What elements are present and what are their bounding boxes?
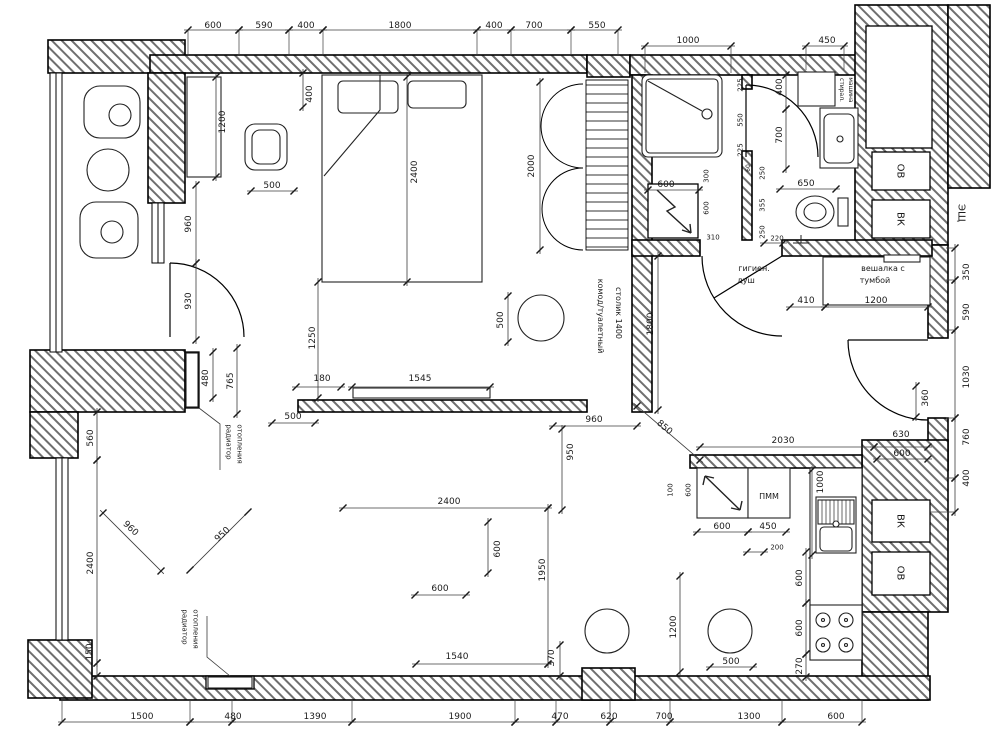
dim-label: 400 xyxy=(297,21,314,31)
dim-label: 600 xyxy=(431,584,448,594)
annotation-label: столик 1400 xyxy=(614,287,623,339)
round-table-bedroom xyxy=(518,295,564,341)
dim-label: 150 xyxy=(85,643,95,660)
wall-bath-bottom-right xyxy=(782,240,932,256)
dim-label: 950 xyxy=(566,443,576,460)
washing-machine xyxy=(798,72,835,106)
dim-label: 250 xyxy=(758,225,766,238)
wall-partition-tv xyxy=(298,400,587,412)
dim-label: 60 xyxy=(745,164,752,172)
dim-label: 1200 xyxy=(218,110,228,133)
dim-label: 1545 xyxy=(409,374,432,384)
dim-label: 590 xyxy=(255,21,272,31)
storage-niche xyxy=(866,26,932,148)
wall-bottom-step xyxy=(582,668,635,700)
dim-label: 700 xyxy=(775,126,785,143)
dim-label: 765 xyxy=(226,372,236,389)
dim-label: 500 xyxy=(496,311,506,328)
wall-bottom xyxy=(60,676,930,700)
annotation-label: тумбой xyxy=(860,276,890,285)
dim-label: 220 xyxy=(770,234,783,242)
dim-label: 500 xyxy=(284,412,301,422)
kitchen-sink xyxy=(816,497,856,553)
round-table xyxy=(708,609,752,653)
dim-label: 650 xyxy=(797,179,814,189)
dim-label: 1250 xyxy=(308,326,318,349)
dim-label: 600 xyxy=(827,712,844,722)
annotation-label: машина xyxy=(847,77,854,103)
dim-label: 500 xyxy=(263,181,280,191)
dim-label: 400 xyxy=(305,85,315,102)
dim-label: 410 xyxy=(797,296,814,306)
radiator xyxy=(208,677,252,688)
dim-label: 600 xyxy=(702,201,710,214)
wall-top-pier xyxy=(587,55,630,77)
wall-left-mid-a xyxy=(30,350,185,412)
balcony-table xyxy=(87,149,129,191)
dim-label: 1000 xyxy=(816,470,826,493)
dim-label: 590 xyxy=(962,303,972,320)
wall-kitchen-top xyxy=(690,455,862,468)
dim-label: 2400 xyxy=(86,551,96,574)
dim-label: 2400 xyxy=(438,497,461,507)
dim-label: 225 xyxy=(736,143,744,156)
dim-label: 1000 xyxy=(677,36,700,46)
annotation-label: стирал. xyxy=(838,78,845,102)
dim-label: 355 xyxy=(758,198,766,211)
floor-plan-sheet: 6005904001800400700550100045015004801390… xyxy=(0,0,1000,745)
dim-label: 1300 xyxy=(738,712,761,722)
desk-chair xyxy=(245,124,287,170)
dim-label: 360 xyxy=(921,389,931,406)
annotation-label: вешалка с xyxy=(861,264,905,273)
wall-utility-ext xyxy=(948,5,990,188)
dim-label: 1540 xyxy=(446,652,469,662)
dim-label: 250 xyxy=(758,166,766,179)
dim-label: 600 xyxy=(795,619,805,636)
dim-label: 270 xyxy=(795,657,805,674)
annotation-label: ВК xyxy=(895,212,906,226)
dim-label: 700 xyxy=(655,712,672,722)
dim-label: 960 xyxy=(184,215,194,232)
dim-label: 600 xyxy=(795,569,805,586)
annotation-label: гигиен. xyxy=(738,264,770,273)
wall-balcony-divider xyxy=(148,73,185,203)
tv-console xyxy=(353,388,490,398)
annotation-label: отопления xyxy=(236,424,244,463)
dim-label: 180 xyxy=(313,374,330,384)
wall-left-mid-b xyxy=(30,412,78,458)
dim-label: 470 xyxy=(551,712,568,722)
dim-label: 630 xyxy=(892,430,909,440)
annotation-label: радиатор xyxy=(181,609,189,645)
dim-label: 1200 xyxy=(865,296,888,306)
annotation-label: ОВ xyxy=(895,566,906,581)
dim-label: 550 xyxy=(736,113,744,126)
annotation-label: ОВ xyxy=(895,164,906,179)
dim-label: 100 xyxy=(666,483,674,496)
bathroom-vanity xyxy=(820,108,858,168)
floor-plan-drawing: 6005904001800400700550100045015004801390… xyxy=(0,0,1000,745)
dim-label: 2400 xyxy=(410,160,420,183)
dim-label: 400 xyxy=(485,21,502,31)
wall-right-upper xyxy=(928,245,948,338)
dim-label: 450 xyxy=(818,36,835,46)
dim-label: 225 xyxy=(736,78,744,91)
dim-label: 1500 xyxy=(131,712,154,722)
dim-label: 1900 xyxy=(449,712,472,722)
annotation-label: отопления xyxy=(192,609,200,648)
dim-label: 350 xyxy=(962,263,972,280)
wardrobe-rail xyxy=(586,80,628,250)
shower-drain xyxy=(702,109,712,119)
round-table xyxy=(585,609,629,653)
dim-label: 1030 xyxy=(962,365,972,388)
pillow xyxy=(408,81,466,108)
dim-label: 370 xyxy=(547,649,557,666)
bed xyxy=(322,75,482,282)
dim-label: 620 xyxy=(600,712,617,722)
dim-label: 2000 xyxy=(527,154,537,177)
dim-label: 700 xyxy=(525,21,542,31)
faucet xyxy=(837,136,843,142)
dim-label: 500 xyxy=(722,657,739,667)
dim-label: 600 xyxy=(657,180,674,190)
dim-label: 450 xyxy=(759,522,776,532)
dim-label: 760 xyxy=(962,428,972,445)
dim-label: 600 xyxy=(493,540,503,557)
dim-label: 560 xyxy=(86,429,96,446)
wall-bath-bottom-left xyxy=(632,240,700,256)
dim-label: 930 xyxy=(184,292,194,309)
dim-label: 480 xyxy=(201,369,211,386)
annotation-label: ВК xyxy=(895,514,906,528)
dim-label: 1800 xyxy=(646,312,656,335)
radiator xyxy=(186,353,198,407)
shower-tray xyxy=(642,75,722,157)
dim-label: 300 xyxy=(702,169,710,182)
wall-bottom-left xyxy=(28,640,92,698)
dim-label: 960 xyxy=(585,415,602,425)
pillow xyxy=(338,81,398,113)
wall-top xyxy=(150,55,587,73)
hanger-rail xyxy=(884,255,920,262)
dim-label: 1950 xyxy=(538,558,548,581)
dim-label: 200 xyxy=(770,543,783,551)
dim-label: 600 xyxy=(204,21,221,31)
dim-label: 1200 xyxy=(669,615,679,638)
annotation-label: ЭЩ xyxy=(956,204,967,222)
dim-label: 400 xyxy=(962,469,972,486)
dim-label: 400 xyxy=(775,78,785,95)
dim-label: 1800 xyxy=(389,21,412,31)
dim-label: 550 xyxy=(588,21,605,31)
annotation-label: комод/туалетный xyxy=(596,279,605,354)
dim-label: 600 xyxy=(713,522,730,532)
annotation-label: ПММ xyxy=(759,492,779,501)
dim-label: 2030 xyxy=(772,436,795,446)
toilet xyxy=(796,196,848,228)
annotation-label: душ xyxy=(737,276,755,285)
dim-label: 600 xyxy=(893,449,910,459)
dim-label: 1390 xyxy=(304,712,327,722)
annotation-label: радиатор xyxy=(225,424,233,460)
dim-label: 600 xyxy=(684,483,692,496)
hob xyxy=(810,605,862,660)
dim-label: 310 xyxy=(706,233,719,241)
